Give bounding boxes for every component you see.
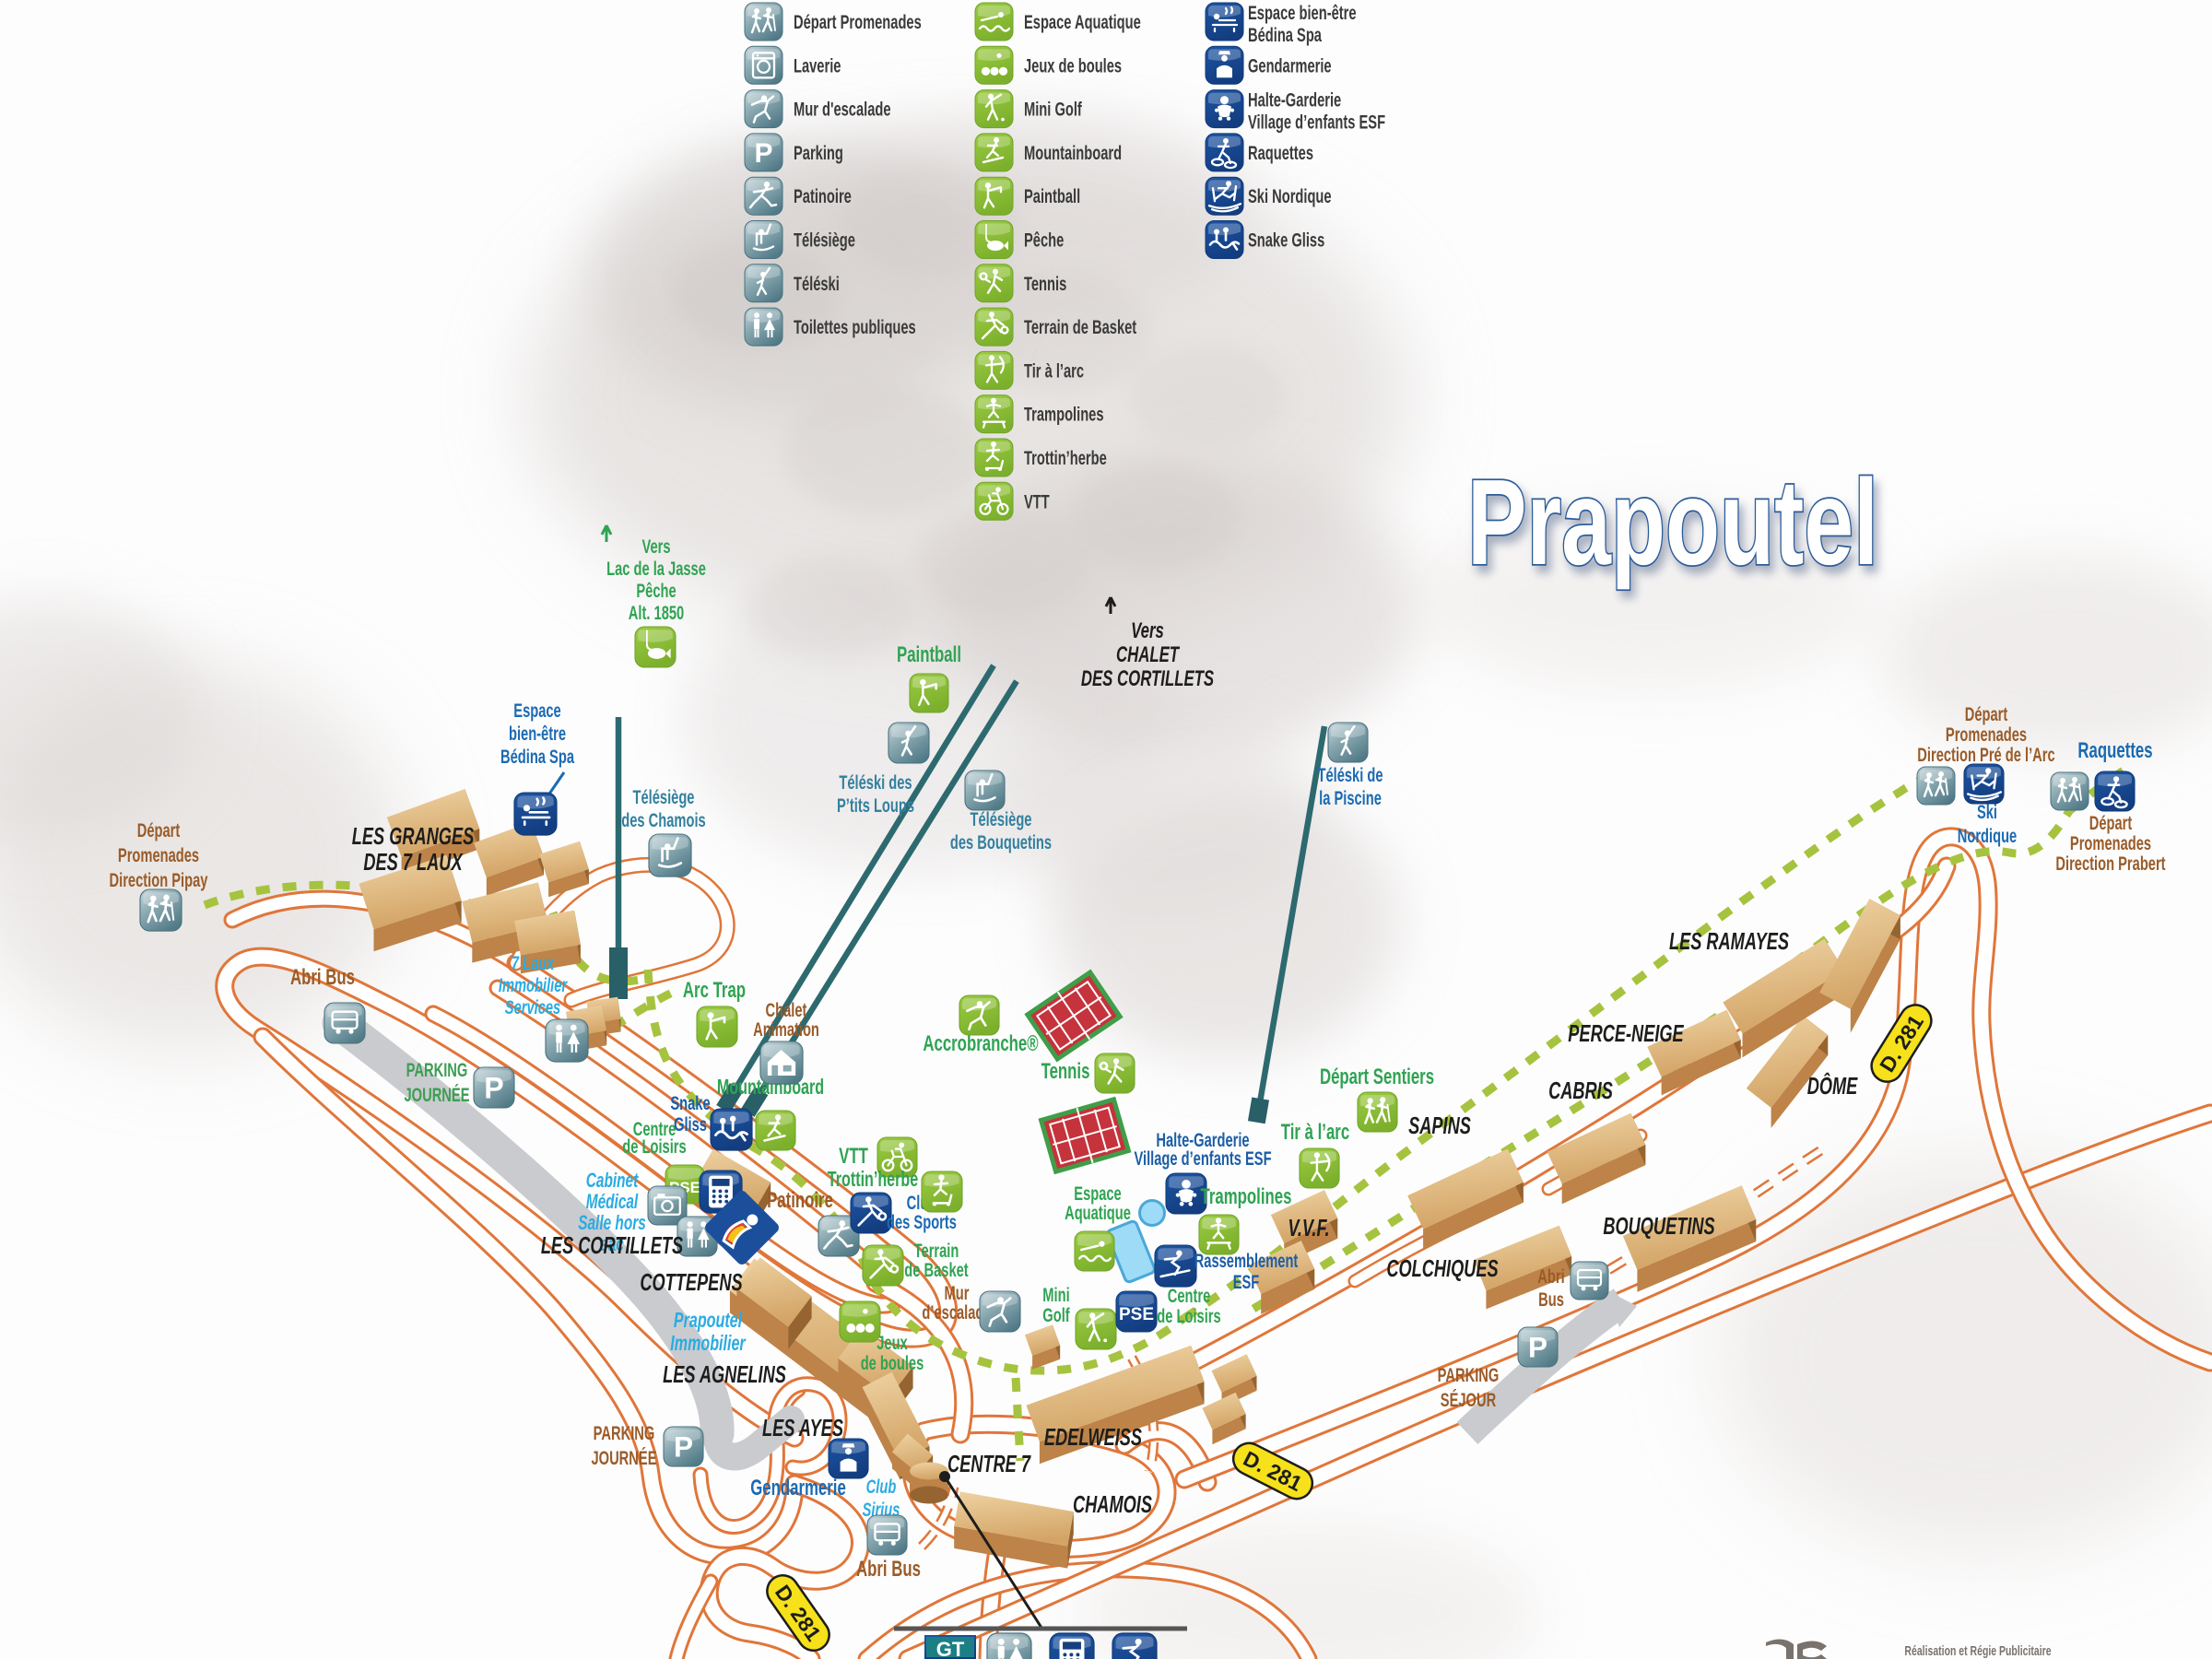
- svg-text:SAPINS: SAPINS: [1408, 1112, 1471, 1139]
- svg-text:SnakeGliss: SnakeGliss: [670, 1092, 710, 1135]
- svg-text:CHAMOIS: CHAMOIS: [1073, 1491, 1152, 1518]
- svg-text:Prapoutel: Prapoutel: [1467, 454, 1878, 590]
- svg-text:Gendarmerie: Gendarmerie: [1248, 55, 1332, 76]
- svg-text:BOUQUETINS: BOUQUETINS: [1603, 1213, 1714, 1240]
- svg-text:Jeux de boules: Jeux de boules: [1024, 55, 1122, 76]
- svg-text:Paintball: Paintball: [1024, 186, 1080, 207]
- svg-text:PSE: PSE: [1119, 1305, 1154, 1324]
- svg-text:V.V.F.: V.V.F.: [1288, 1215, 1329, 1241]
- svg-text:Trampolines: Trampolines: [1024, 404, 1104, 425]
- svg-text:Terrain de Basket: Terrain de Basket: [1024, 317, 1136, 338]
- svg-text:COLCHIQUES: COLCHIQUES: [1386, 1255, 1498, 1282]
- svg-text:DÔME: DÔME: [1807, 1073, 1858, 1100]
- svg-text:Téléski desP’tits Loups: Téléski desP’tits Loups: [837, 771, 914, 816]
- svg-text:Tennis: Tennis: [1024, 273, 1066, 294]
- svg-text:AbriBus: AbriBus: [1537, 1265, 1564, 1310]
- svg-text:Tennis: Tennis: [1041, 1059, 1090, 1084]
- svg-text:Raquettes: Raquettes: [1248, 142, 1313, 163]
- svg-text:Mountainboard: Mountainboard: [1024, 142, 1122, 163]
- svg-text:Départ Sentiers: Départ Sentiers: [1320, 1065, 1434, 1089]
- svg-text:LES GRANGESDES 7 LAUX: LES GRANGESDES 7 LAUX: [352, 823, 474, 876]
- svg-text:Télésiègedes Chamois: Télésiègedes Chamois: [621, 786, 705, 830]
- svg-text:Mur d'escalade: Mur d'escalade: [794, 99, 891, 120]
- svg-text:PERCE-NEIGE: PERCE-NEIGE: [1568, 1020, 1684, 1047]
- svg-text:Téléski: Téléski: [794, 273, 840, 294]
- svg-text:Pêche: Pêche: [1024, 229, 1064, 251]
- svg-text:LES RAMAYES: LES RAMAYES: [1669, 928, 1789, 955]
- svg-text:Trampolines: Trampolines: [1201, 1184, 1292, 1209]
- svg-text:MiniGolf: MiniGolf: [1042, 1284, 1070, 1325]
- svg-text:Arc Trap: Arc Trap: [683, 978, 746, 1003]
- svg-text:Parking: Parking: [794, 142, 843, 163]
- svg-text:CABRIS: CABRIS: [1548, 1077, 1613, 1104]
- svg-text:Raquettes: Raquettes: [2077, 738, 2152, 763]
- svg-text:Abri Bus: Abri Bus: [856, 1557, 921, 1582]
- svg-text:Télésiège: Télésiège: [794, 229, 855, 251]
- svg-text:Tir à l’arc: Tir à l’arc: [1024, 360, 1084, 382]
- svg-text:Patinoire: Patinoire: [767, 1188, 833, 1213]
- svg-text:LES AYES: LES AYES: [762, 1415, 843, 1441]
- svg-text:Trottin’herbe: Trottin’herbe: [828, 1168, 918, 1191]
- svg-text:Tir à l’arc: Tir à l’arc: [1281, 1120, 1349, 1145]
- svg-text:COTTEPENS: COTTEPENS: [640, 1269, 742, 1296]
- svg-text:Ski Nordique: Ski Nordique: [1248, 186, 1332, 207]
- svg-text:ClubSirius: ClubSirius: [863, 1476, 900, 1520]
- svg-text:LES AGNELINS: LES AGNELINS: [663, 1361, 786, 1388]
- svg-text:Toilettes publiques: Toilettes publiques: [794, 317, 916, 338]
- svg-text:Terrainde Basket: Terrainde Basket: [904, 1240, 968, 1280]
- svg-text:Réalisation et Régie Publicita: Réalisation et Régie Publicitaire: [1904, 1642, 2051, 1658]
- svg-text:Abri Bus: Abri Bus: [290, 965, 355, 990]
- svg-text:Départ Promenades: Départ Promenades: [794, 11, 922, 32]
- svg-text:PrapoutelImmobilier: PrapoutelImmobilier: [670, 1309, 746, 1355]
- svg-text:Espace Aquatique: Espace Aquatique: [1024, 11, 1141, 32]
- svg-text:Trottin’herbe: Trottin’herbe: [1024, 447, 1107, 468]
- svg-text:CENTRE 7: CENTRE 7: [947, 1451, 1031, 1477]
- svg-text:Paintball: Paintball: [897, 642, 961, 667]
- svg-text:Snake Gliss: Snake Gliss: [1248, 229, 1324, 251]
- svg-text:Mini Golf: Mini Golf: [1024, 99, 1083, 120]
- svg-text:Laverie: Laverie: [794, 55, 841, 76]
- svg-text:GT: GT: [936, 1638, 965, 1659]
- svg-text:EDELWEISS: EDELWEISS: [1044, 1424, 1142, 1451]
- svg-text:EspaceAquatique: EspaceAquatique: [1065, 1182, 1131, 1223]
- svg-text:VTT: VTT: [839, 1144, 868, 1169]
- svg-text:Patinoire: Patinoire: [794, 186, 852, 207]
- svg-text:Gendarmerie: Gendarmerie: [750, 1476, 846, 1500]
- svg-text:VTT: VTT: [1024, 491, 1050, 512]
- svg-text:Téléski dela Piscine: Téléski dela Piscine: [1317, 764, 1382, 808]
- svg-text:LES CORTILLETS: LES CORTILLETS: [541, 1232, 683, 1259]
